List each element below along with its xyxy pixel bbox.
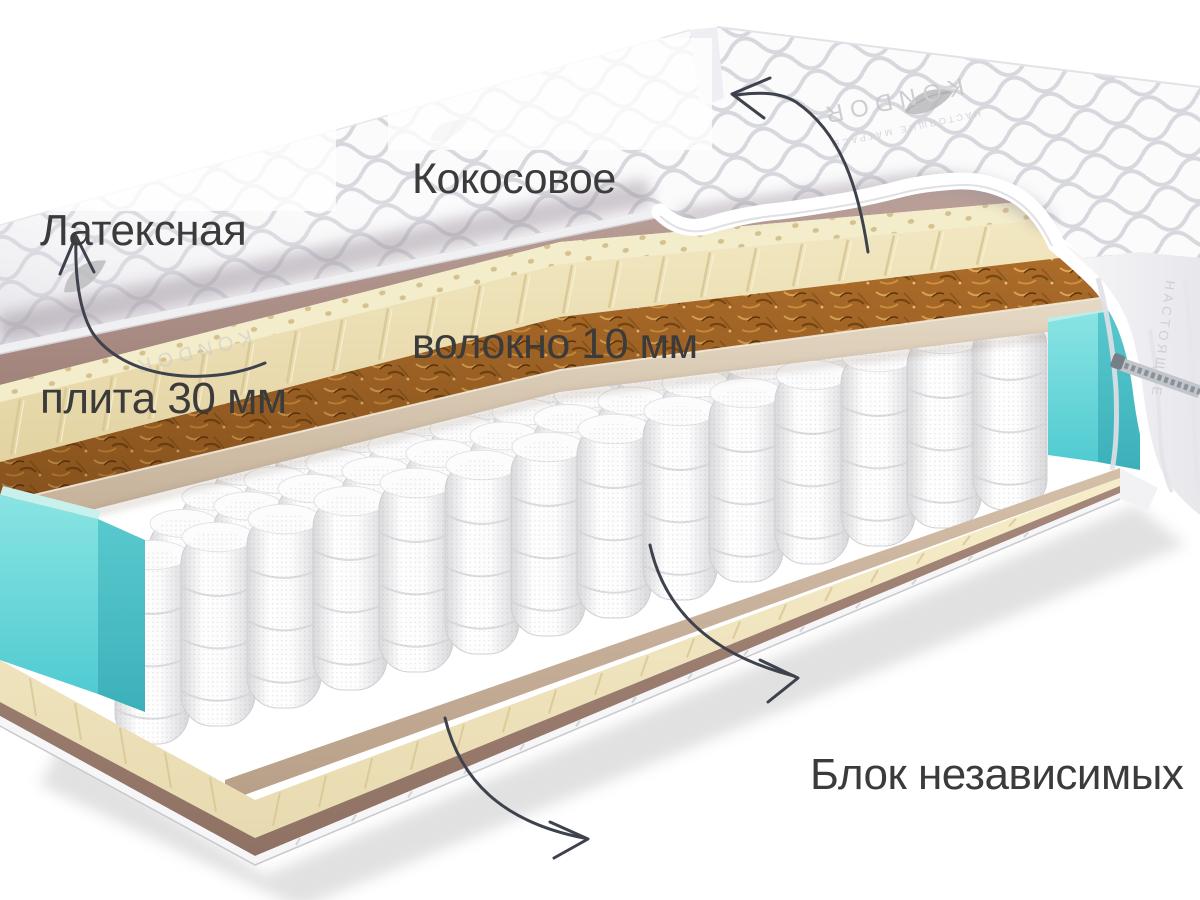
label-line: Латексная <box>40 203 336 259</box>
pocket-spring <box>511 432 585 636</box>
label-coconut-fiber-10mm: Кокосовое волокно 10 мм <box>388 38 712 150</box>
pocket-spring <box>313 486 387 690</box>
side-support-left-side <box>98 519 145 712</box>
side-support-right-front <box>1048 313 1098 462</box>
pocket-spring <box>181 522 255 726</box>
pocket-spring <box>577 414 651 618</box>
label-line: Блок независимых <box>810 742 1183 808</box>
pocket-spring <box>709 378 783 582</box>
pocket-spring <box>841 342 915 546</box>
pocket-spring <box>445 450 519 654</box>
pocket-spring <box>379 468 453 672</box>
side-support-left-front <box>0 495 98 694</box>
mattress-cutaway-diagram: KONDOR НАСТОЯЩИЕ МАТРАСЫ KONDOR НАСТОЯЩИ… <box>0 0 1200 900</box>
label-line: плита 30 мм <box>40 371 336 427</box>
label-latex-plate-30mm: Латексная плита 30 мм <box>18 83 336 211</box>
pocket-spring <box>775 360 849 564</box>
label-latex-plate-20mm: Латексная плита 20 мм <box>598 810 1074 900</box>
label-line: волокно 10 мм <box>412 317 712 372</box>
pocket-spring <box>247 504 321 708</box>
label-line: Кокосовое <box>412 152 712 207</box>
